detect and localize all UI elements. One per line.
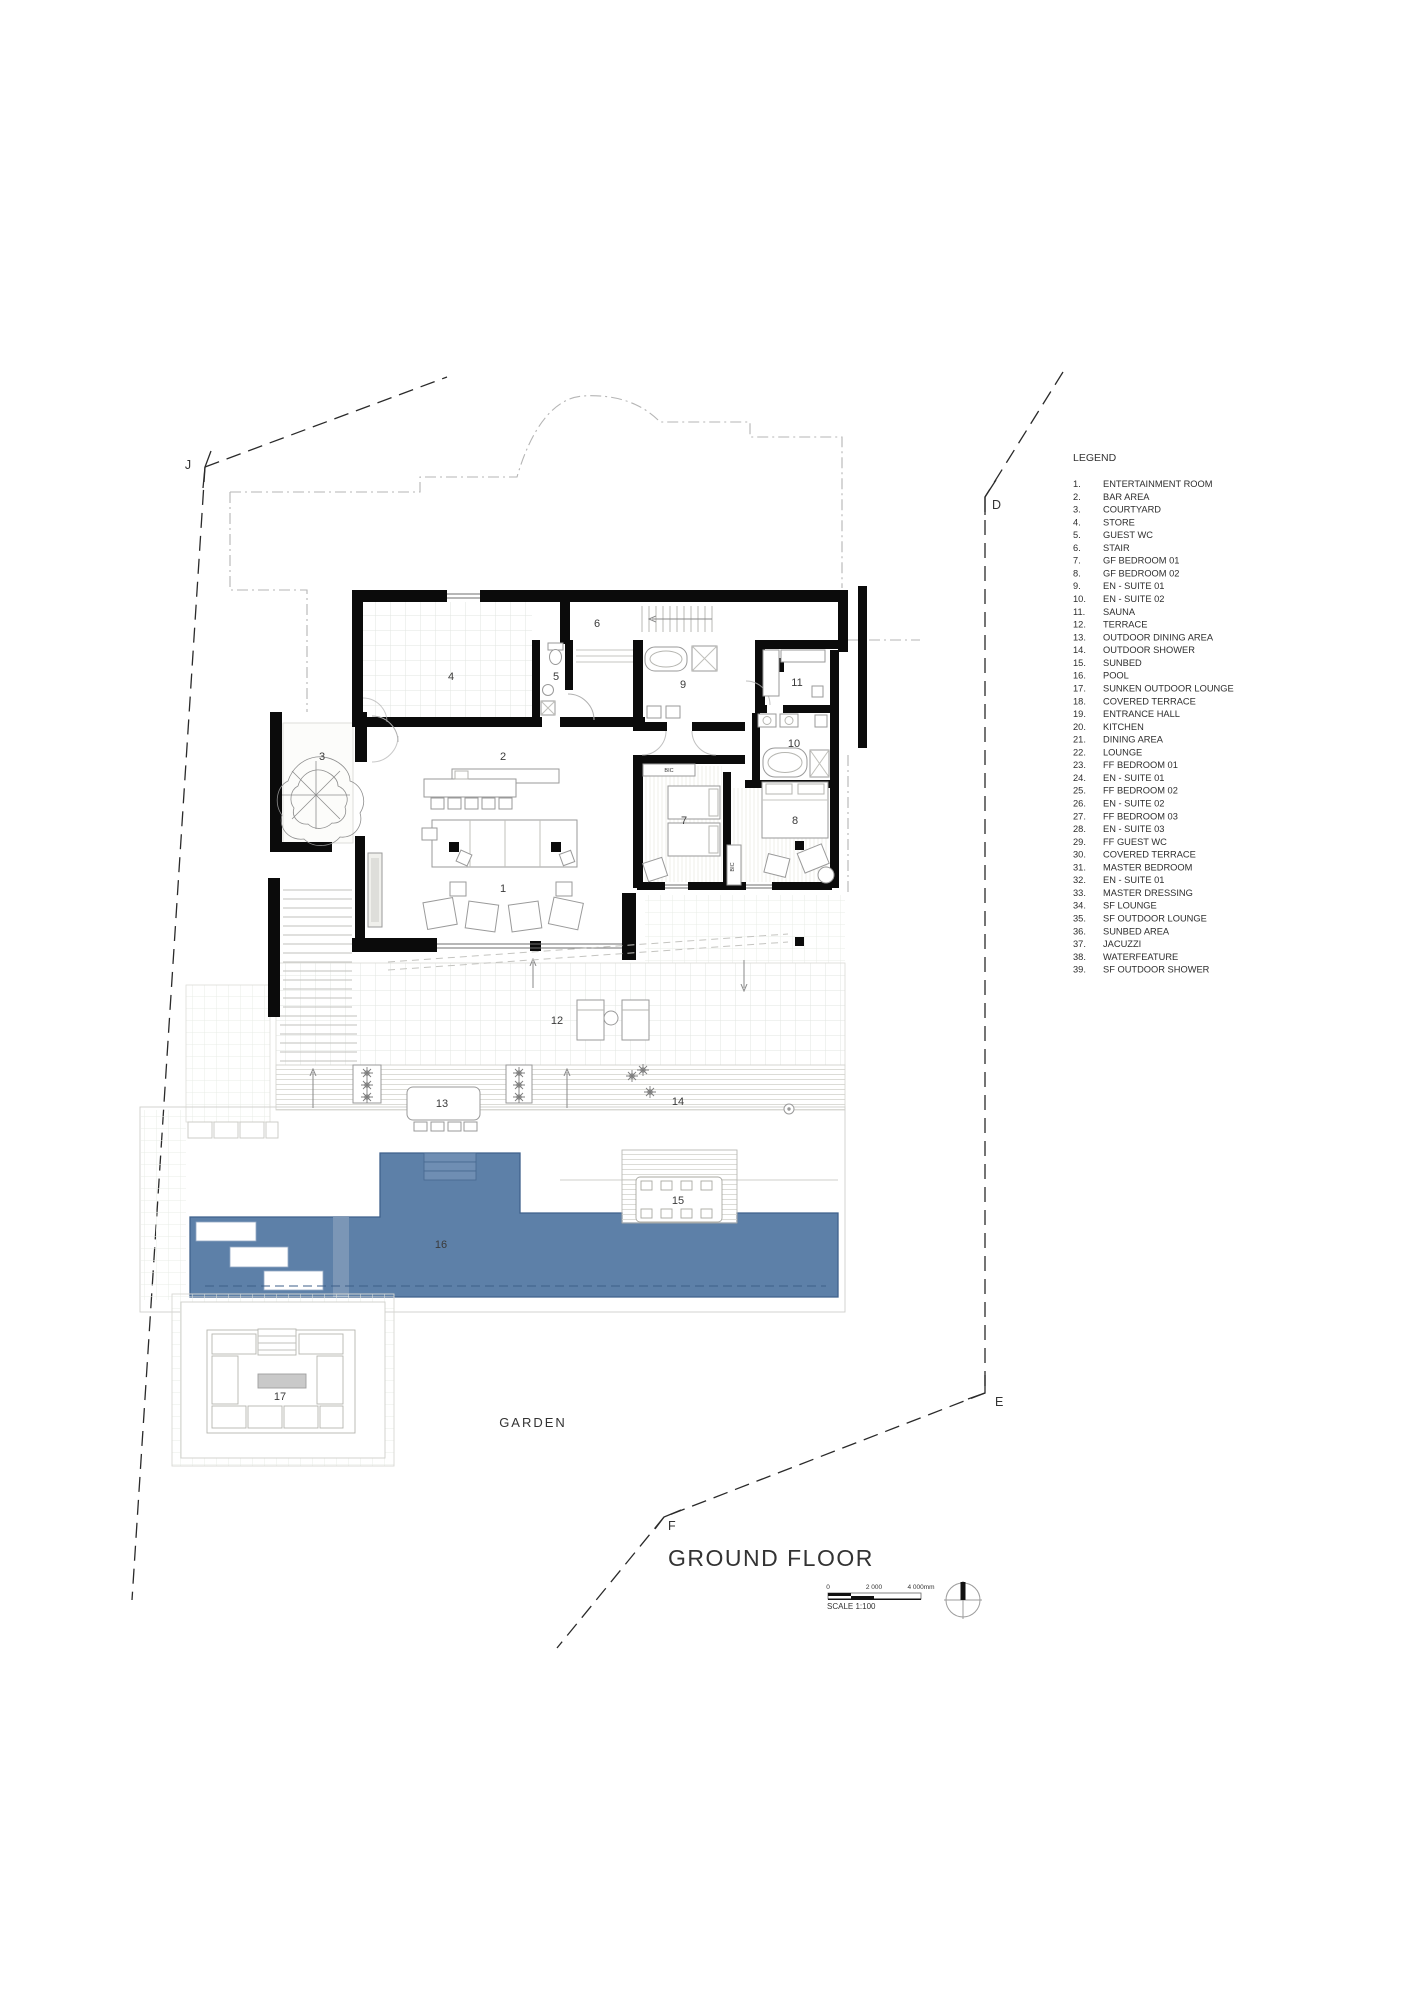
store-floor-grid (362, 602, 532, 719)
legend-item: 25.FF BEDROOM 02 (1073, 786, 1178, 796)
room-number-13: 13 (436, 1098, 448, 1110)
scale-tick-4000: 4 000mm (907, 1584, 934, 1591)
side-table (604, 1011, 618, 1025)
room-number-8: 8 (792, 815, 798, 827)
upper-terrace-grid (645, 895, 845, 963)
basin-icon (543, 685, 554, 696)
room-number-5: 5 (553, 671, 559, 683)
legend-item: 33.MASTER DRESSING (1073, 888, 1193, 898)
sauna-heater-icon (812, 686, 823, 697)
pool-bridge (333, 1217, 349, 1297)
legend-item: 19.ENTRANCE HALL (1073, 709, 1180, 719)
legend-item: 6.STAIR (1073, 543, 1130, 553)
legend-item: 18.COVERED TERRACE (1073, 696, 1196, 706)
room-number-16: 16 (435, 1239, 447, 1251)
bar-stools (431, 798, 512, 809)
room-number-12: 12 (551, 1015, 563, 1027)
boundary-corner-e (968, 1375, 985, 1399)
sheet-title: GROUND FLOOR (668, 1545, 874, 1571)
courtyard-paving (283, 723, 353, 843)
bic-label: BIC (664, 768, 673, 774)
boundary-line-nw (205, 377, 447, 467)
room-number-7: 7 (681, 815, 687, 827)
legend-item: 2.BAR AREA (1073, 492, 1150, 502)
legend-item: 36.SUNBED AREA (1073, 926, 1170, 936)
floor-plan-sheet: J D E F (0, 0, 1414, 2000)
legend-item: 14.OUTDOOR SHOWER (1073, 645, 1195, 655)
legend-item: 1.ENTERTAINMENT ROOM (1073, 479, 1213, 489)
bar-counter (424, 769, 559, 809)
room-number-6: 6 (594, 618, 600, 630)
legend-item: 13.OUTDOOR DINING AREA (1073, 632, 1214, 642)
legend-item: 8.GF BEDROOM 02 (1073, 568, 1179, 578)
shower-icon (541, 701, 555, 715)
legend-item: 24.EN - SUITE 01 (1073, 773, 1164, 783)
legend-item: 30.COVERED TERRACE (1073, 850, 1196, 860)
legend-item: 5.GUEST WC (1073, 530, 1153, 540)
room-number-14: 14 (672, 1096, 684, 1108)
room-number-17: 17 (274, 1391, 286, 1403)
scale-tick-0: 0 (826, 1584, 830, 1591)
room-number-10: 10 (788, 738, 800, 750)
north-arrow-icon (944, 1581, 982, 1619)
sauna-benches (763, 650, 825, 697)
basin-icon (666, 706, 680, 718)
toilet-icon (815, 715, 827, 727)
fireplace (368, 853, 382, 927)
legend-item: 38.WATERFEATURE (1073, 952, 1178, 962)
boundary-line-se (664, 1393, 985, 1517)
garden-label: GARDEN (499, 1415, 567, 1430)
legend-item: 3.COURTYARD (1073, 505, 1161, 515)
legend-list: 1.ENTERTAINMENT ROOM2.BAR AREA3.COURTYAR… (1073, 479, 1234, 975)
room-number-3: 3 (319, 751, 325, 763)
toilet-icon (548, 643, 563, 650)
outdoor-shower-icon (784, 1104, 794, 1114)
scale-tick-2000: 2 000 (866, 1584, 883, 1591)
floor-plan-drawing: J D E F (0, 0, 1414, 2000)
legend-item: 31.MASTER BEDROOM (1073, 862, 1192, 872)
legend-item: 12.TERRACE (1073, 620, 1147, 630)
fire-table (258, 1374, 306, 1388)
legend-item: 9.EN - SUITE 01 (1073, 581, 1164, 591)
boundary-label-j: J (185, 458, 191, 472)
shower-icon (692, 646, 717, 671)
side-table (450, 882, 466, 896)
legend-item: 34.SF LOUNGE (1073, 901, 1157, 911)
toilet-icon (647, 706, 661, 718)
legend-item: 10.EN - SUITE 02 (1073, 594, 1164, 604)
boundary-line-ne (985, 372, 1063, 497)
room-number-9: 9 (680, 679, 686, 691)
room-number-2: 2 (500, 751, 506, 763)
legend-item: 35.SF OUTDOOR LOUNGE (1073, 914, 1207, 924)
legend-item: 39.SF OUTDOOR SHOWER (1073, 965, 1210, 975)
legend-item: 37.JACUZZI (1073, 939, 1141, 949)
sunbed-platform (622, 1150, 737, 1223)
boundary-line-sw (557, 1517, 664, 1648)
side-table (556, 882, 572, 896)
legend-item: 7.GF BEDROOM 01 (1073, 556, 1179, 566)
scale-label: SCALE 1:100 (827, 1602, 876, 1611)
legend-item: 15.SUNBED (1073, 658, 1142, 668)
pool (190, 1153, 838, 1297)
entrance-steps (576, 650, 633, 662)
bic-label: BIC (730, 862, 736, 871)
legend-item: 17.SUNKEN OUTDOOR LOUNGE (1073, 683, 1234, 693)
legend-item: 21.DINING AREA (1073, 735, 1164, 745)
pool-side-grid (140, 1110, 186, 1300)
side-table (422, 828, 437, 840)
boundary-label-e: E (995, 1395, 1003, 1409)
legend-item: 26.EN - SUITE 02 (1073, 799, 1164, 809)
legend-item: 4.STORE (1073, 517, 1135, 527)
boundary-label-f: F (668, 1519, 676, 1533)
boundary-corner-j (203, 451, 211, 488)
main-stair (642, 606, 712, 632)
ground-surfaces (140, 602, 845, 1466)
legend-item: 20.KITCHEN (1073, 722, 1144, 732)
terrace-grid (276, 963, 845, 1065)
legend-item: 27.FF BEDROOM 03 (1073, 811, 1178, 821)
legend-item: 16.POOL (1073, 671, 1129, 681)
sunken-lounge (172, 1294, 394, 1466)
room-number-4: 4 (448, 671, 454, 683)
legend-item: 28.EN - SUITE 03 (1073, 824, 1164, 834)
lounge-chairs (423, 897, 583, 932)
legend-item: 22.LOUNGE (1073, 747, 1142, 757)
room-number-1: 1 (500, 883, 506, 895)
pool-steps (424, 1153, 476, 1180)
scale-bar: 0 2 000 4 000mm SCALE 1:100 (826, 1584, 934, 1611)
boundary-label-d: D (992, 498, 1001, 512)
room-number-11: 11 (791, 677, 802, 689)
garden-step-stones (188, 1122, 278, 1138)
legend-heading: LEGEND (1073, 452, 1117, 464)
legend-item: 23.FF BEDROOM 01 (1073, 760, 1178, 770)
shower-icon (810, 750, 829, 777)
side-table (818, 867, 834, 883)
entertainment-furniture (368, 820, 583, 932)
legend-item: 11.SAUNA (1073, 607, 1136, 617)
legend-item: 32.EN - SUITE 01 (1073, 875, 1164, 885)
room-number-15: 15 (672, 1195, 684, 1207)
legend-item: 29.FF GUEST WC (1073, 837, 1167, 847)
garden-path-grid (186, 985, 270, 1122)
